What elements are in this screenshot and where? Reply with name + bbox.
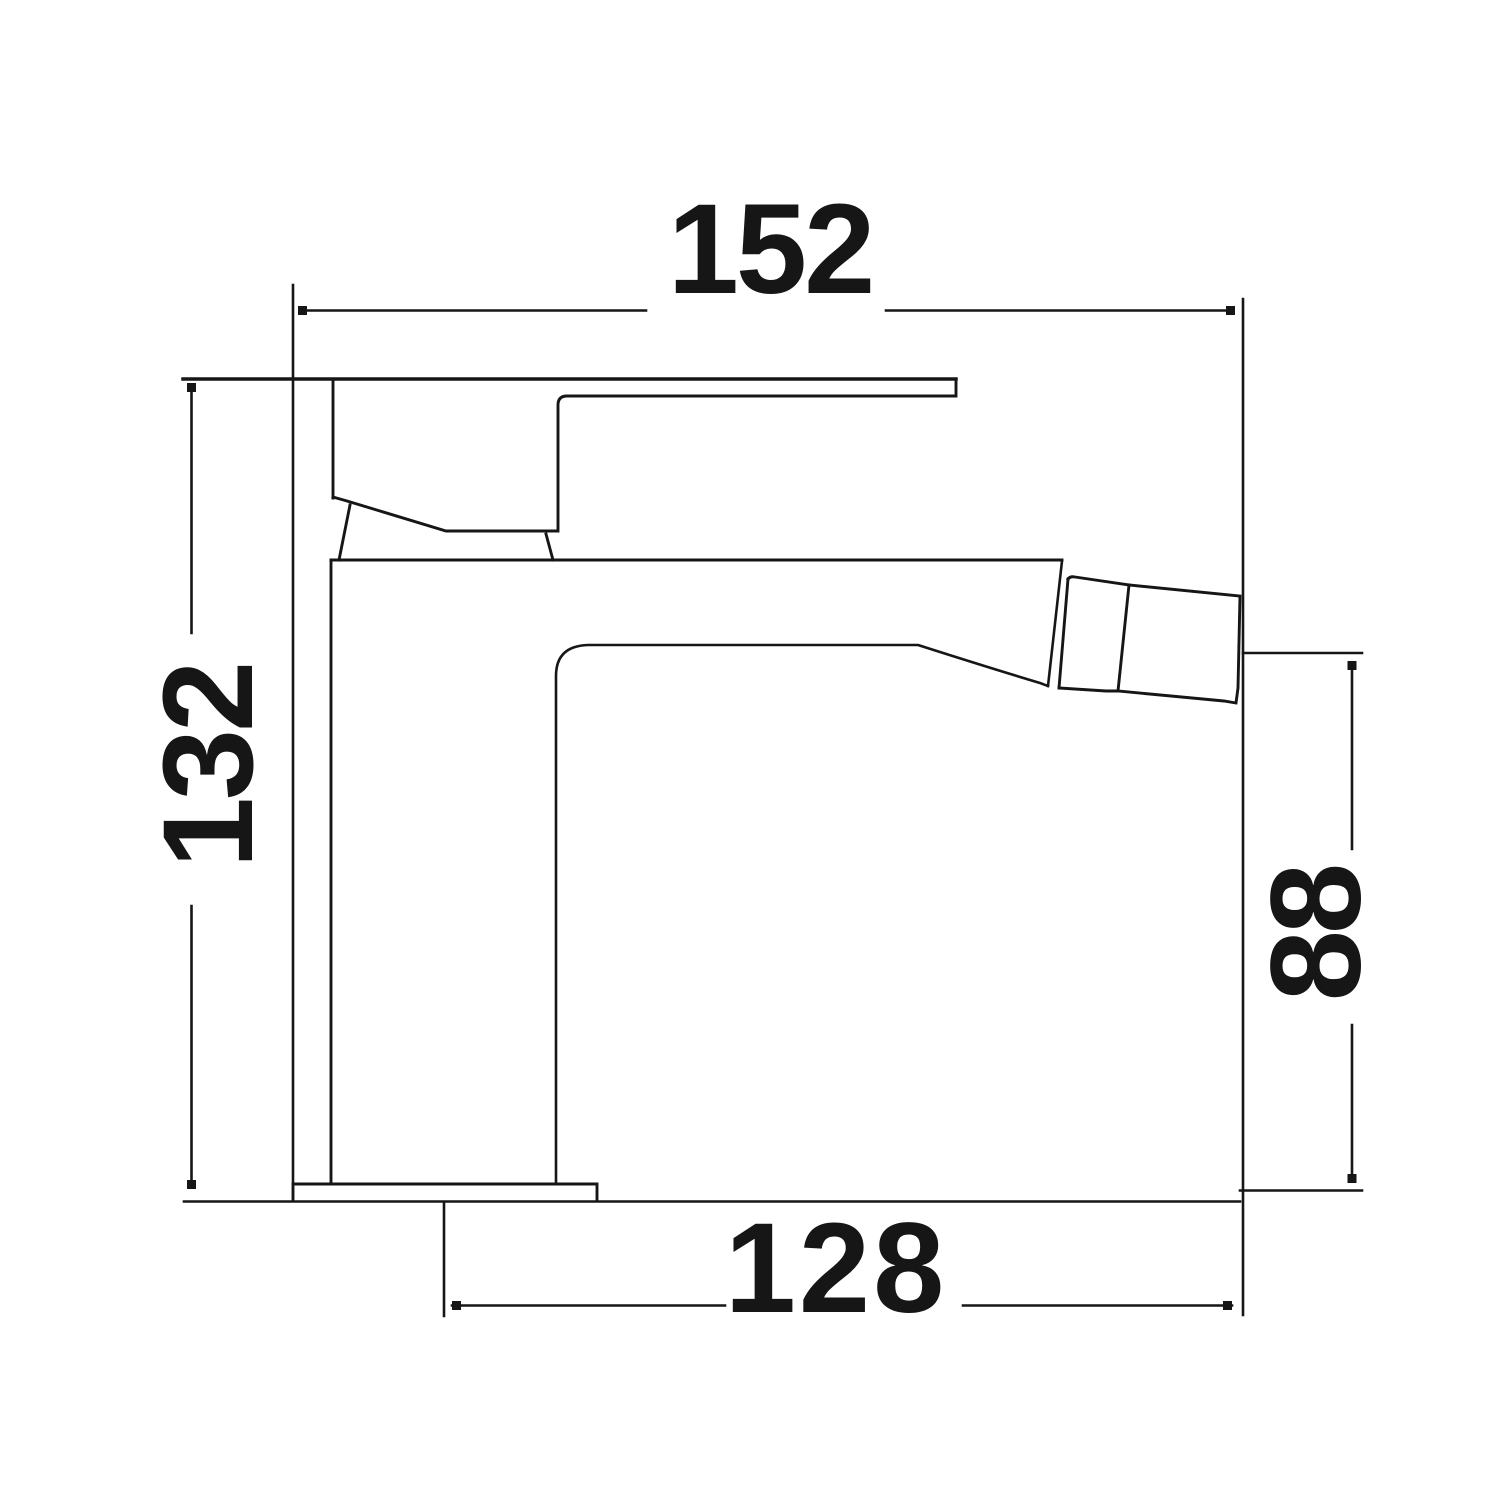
svg-text:152: 152	[668, 178, 873, 321]
svg-text:128: 128	[725, 1197, 948, 1340]
svg-text:132: 132	[137, 664, 280, 869]
svg-text:88: 88	[1245, 866, 1388, 1001]
